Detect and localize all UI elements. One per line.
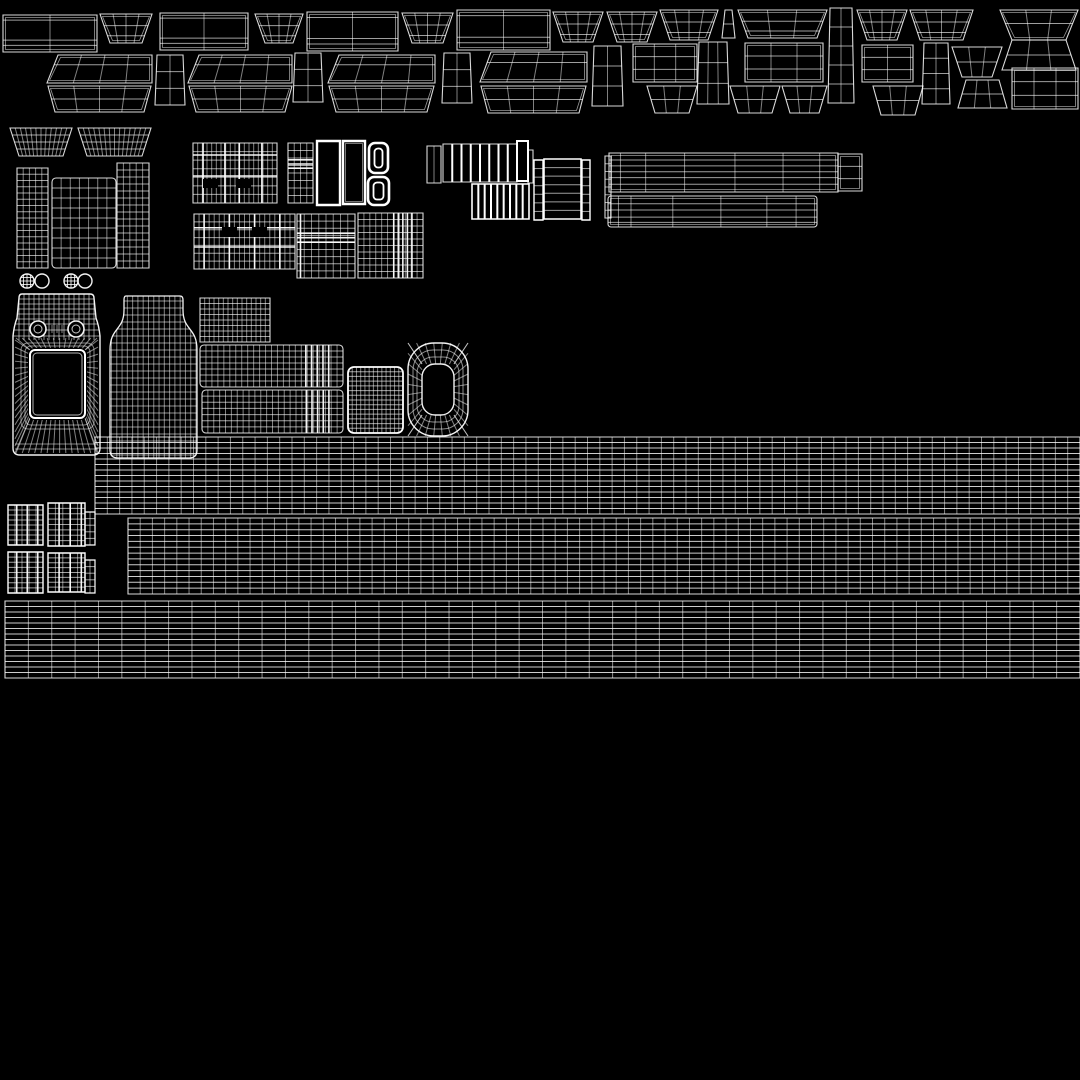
panel-rect-3: [307, 12, 398, 51]
cluster-strip-1: [85, 512, 95, 545]
grid-band-2: [128, 518, 1080, 594]
side-quad-3: [442, 53, 472, 103]
curved-panel-mid: [52, 178, 116, 268]
trapezoid-6: [660, 10, 718, 40]
grid-rect-2: [745, 43, 823, 82]
cluster-block-4: [48, 553, 85, 592]
uv-unwrap-canvas: [0, 0, 1080, 1080]
grid-block-a: [200, 298, 270, 342]
long-bar-1-end: [838, 154, 862, 191]
eyelet-circle-2: [35, 274, 49, 288]
uv-wireframe-layout: [0, 0, 1080, 1080]
trapezoid-8: [910, 10, 973, 40]
side-quad-1: [155, 55, 185, 105]
stripe-strip-1: [427, 146, 441, 183]
trapezoid-2: [255, 14, 303, 43]
grid-band-3: [5, 601, 1080, 678]
long-bar-1: [609, 153, 838, 192]
eyelet-circle-1: [20, 274, 34, 288]
trapezoid-1: [100, 14, 152, 43]
grid-rect-3: [862, 45, 913, 82]
plaid-block-a: [193, 143, 277, 203]
small-trap-4: [873, 86, 923, 115]
grommet-ring-2: [368, 177, 389, 205]
tall-panel-2: [922, 43, 950, 104]
pair4-bottom: [481, 86, 586, 113]
cluster-strip-2: [85, 560, 95, 593]
ladder-small-1: [534, 160, 543, 220]
pair1-top: [47, 55, 152, 83]
trapezoid-7: [857, 10, 907, 40]
side-quad-2: [293, 53, 323, 102]
panel-rect-1: [3, 15, 97, 52]
cluster-block-1: [8, 505, 43, 545]
ladder-small-2: [582, 160, 590, 220]
grid-block-c: [202, 390, 343, 433]
plaid-strip-a: [288, 143, 313, 203]
pair3-top: [328, 55, 435, 83]
small-trap-6: [958, 80, 1007, 108]
bottle-mesh: [110, 296, 197, 458]
curved-panel-left: [17, 168, 48, 268]
pair2-bottom: [189, 86, 292, 112]
grid-rect-1: [633, 44, 697, 82]
pair1-bottom: [48, 86, 151, 112]
grid-rect-4: [1012, 68, 1078, 109]
panel-rect-4: [457, 10, 550, 50]
white-frame-2: [343, 141, 365, 204]
small-trap-3: [782, 86, 827, 113]
white-frame-1: [317, 141, 340, 205]
ring-o-mesh: [408, 343, 468, 436]
dense-trap-2: [78, 128, 151, 156]
pair4-top: [480, 52, 587, 82]
trapezoid-3: [402, 13, 453, 43]
panel-rect-2: [160, 13, 248, 50]
side-quad-5: [697, 42, 729, 104]
grid-band-1: [95, 437, 1080, 514]
barcode-block: [443, 144, 517, 182]
bag-front-mesh: [13, 294, 100, 455]
trapezoid-wide-1: [738, 10, 827, 38]
eyelet-circle-4: [78, 274, 92, 288]
small-trap-1: [647, 86, 697, 113]
cluster-block-2: [48, 503, 85, 546]
small-trap-5: [952, 47, 1002, 77]
curved-panel-right: [117, 163, 149, 268]
side-quad-4: [592, 46, 623, 106]
cluster-block-3: [8, 552, 43, 593]
tall-panel-1: [828, 8, 854, 103]
small-trap-2: [730, 86, 780, 113]
plaid-block-b: [194, 214, 295, 269]
eyelet-circle-3: [64, 274, 78, 288]
pair3-bottom: [329, 86, 434, 112]
ladder-large: [544, 159, 581, 219]
edge-quad-1: [722, 10, 735, 38]
grommet-ring-1: [369, 143, 388, 173]
long-bar-2: [608, 196, 817, 227]
hourglass-top: [1000, 10, 1078, 40]
grid-block-b: [200, 345, 343, 387]
dense-trap-1: [10, 128, 72, 156]
cup-mesh: [348, 367, 403, 433]
bright-bar-1: [517, 141, 528, 181]
plaid-block-c: [297, 214, 355, 278]
trapezoid-4: [553, 12, 603, 42]
plaid-block-d: [358, 213, 423, 278]
pair2-top: [188, 55, 292, 83]
comb-block: [472, 184, 529, 219]
hourglass-bottom: [1002, 40, 1076, 70]
trapezoid-5: [607, 12, 657, 42]
